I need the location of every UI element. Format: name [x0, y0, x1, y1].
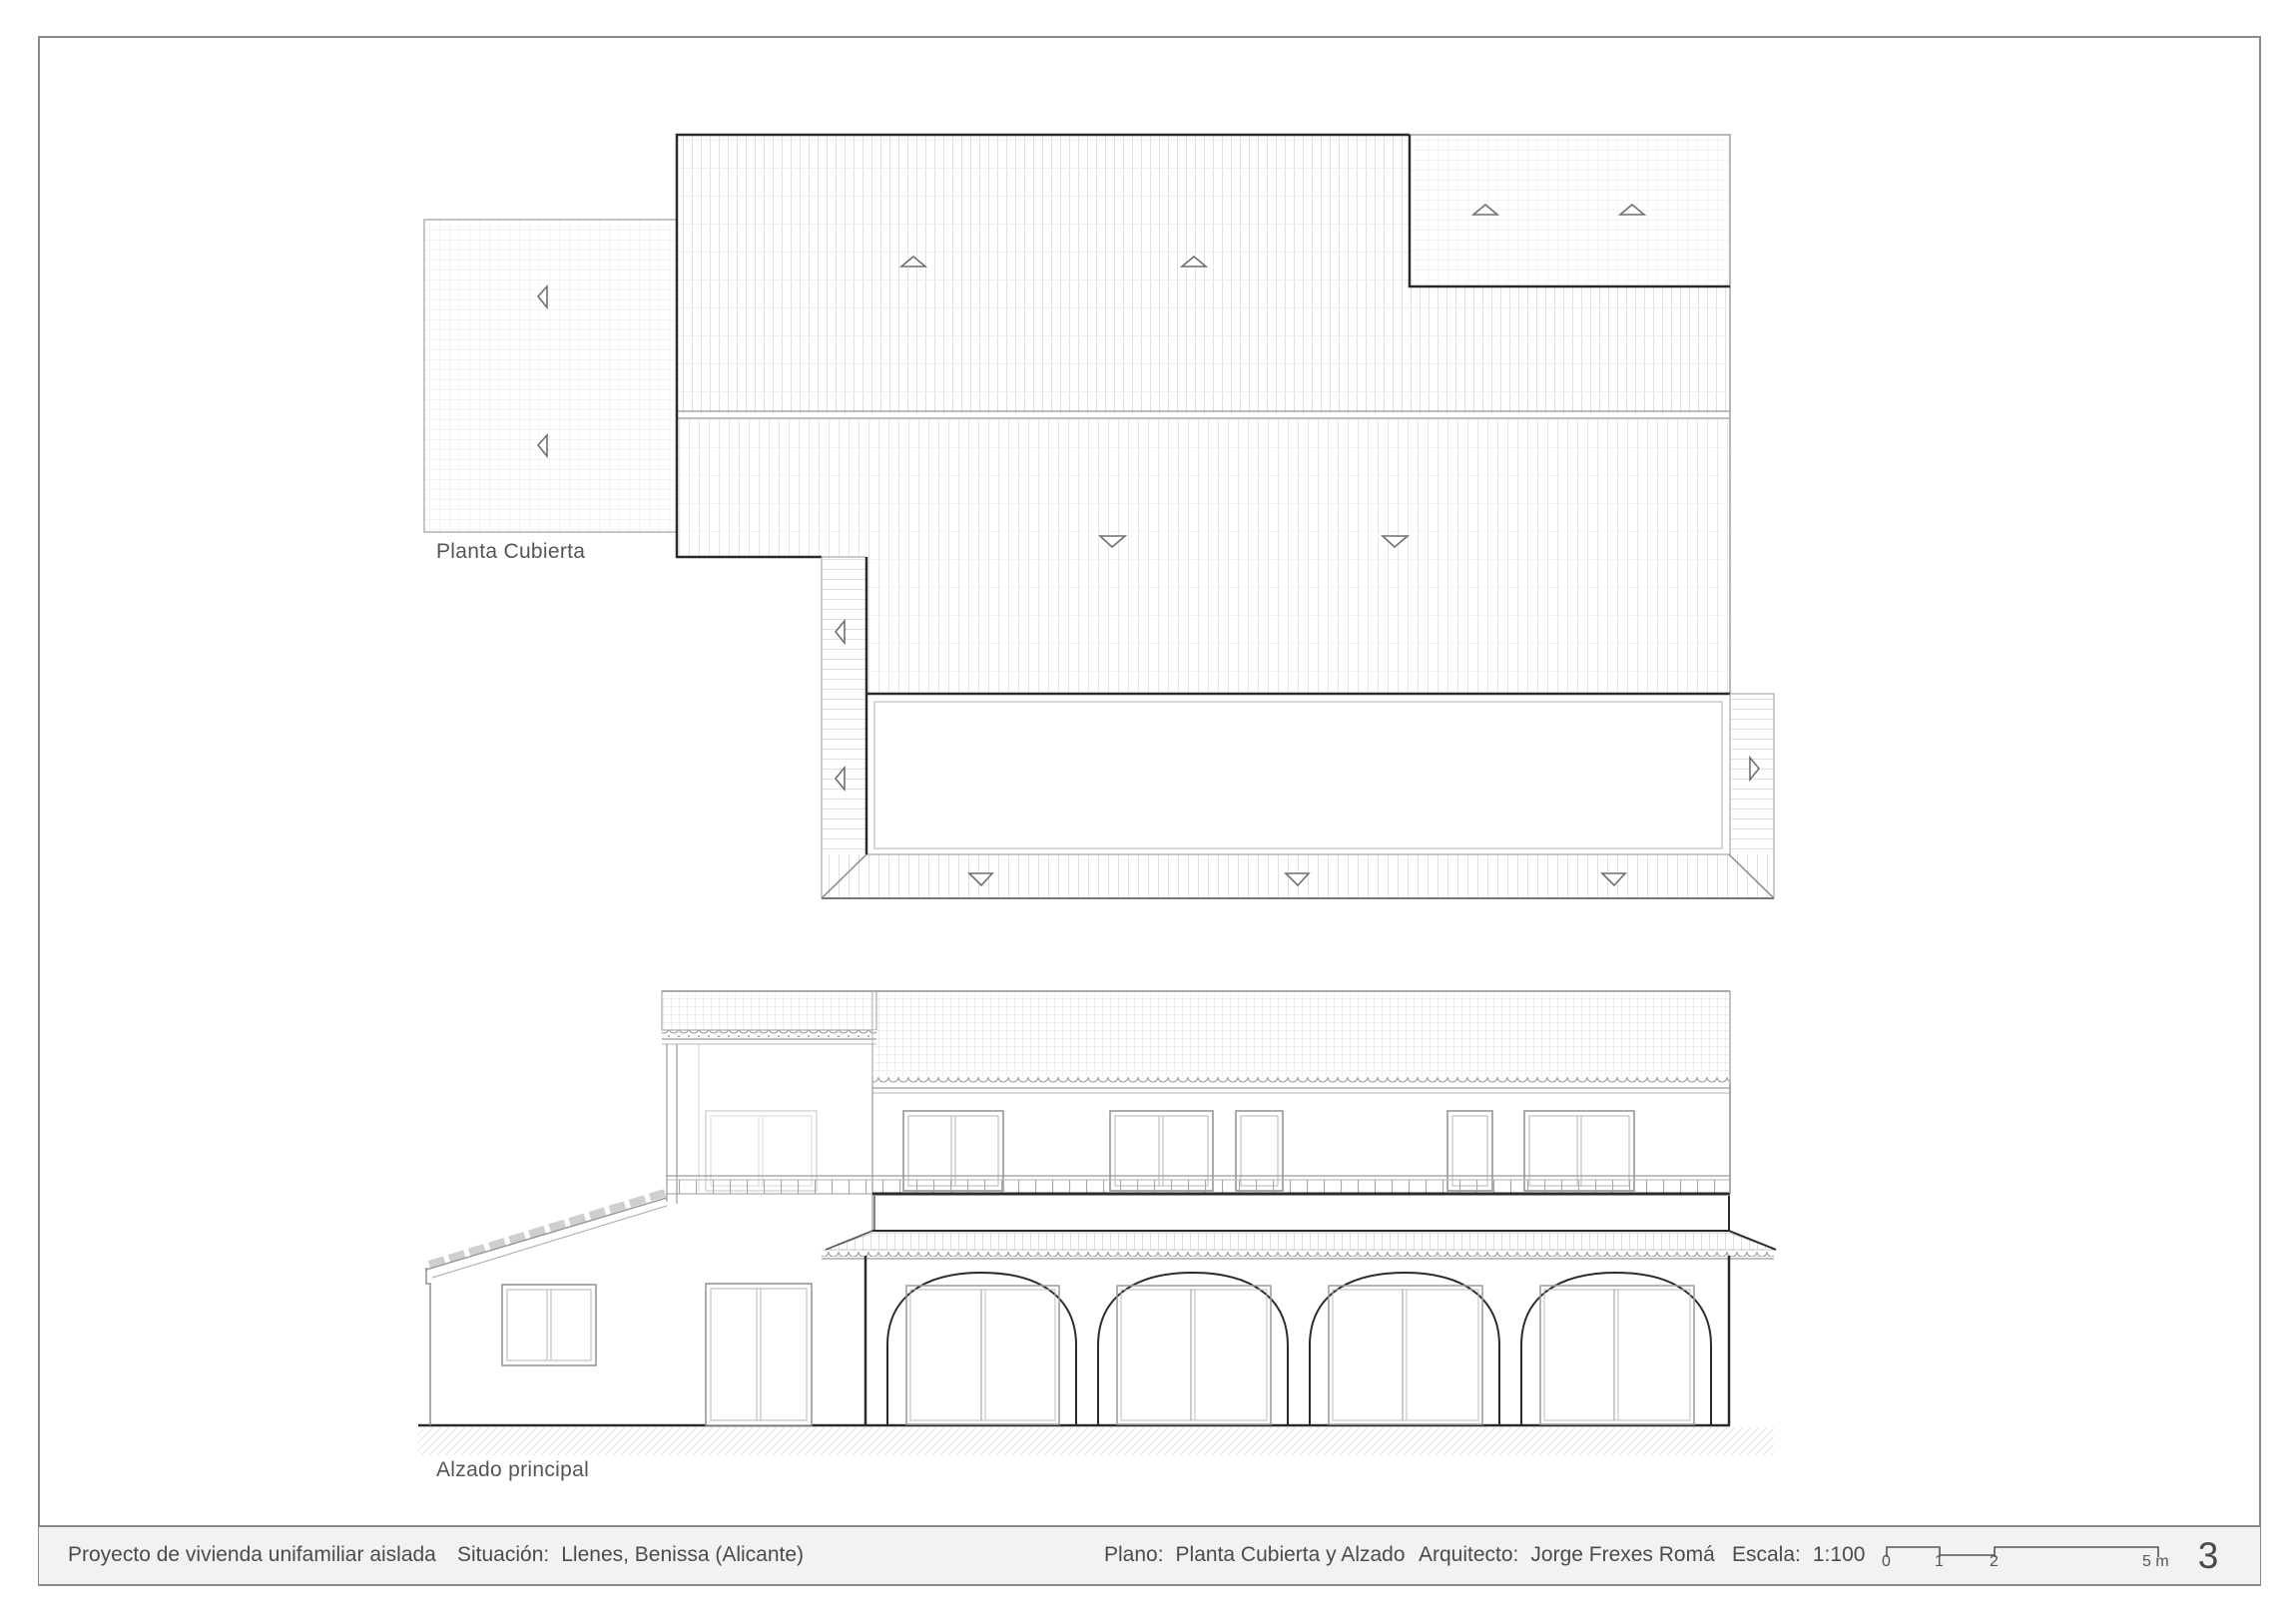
left-wing — [426, 1193, 812, 1425]
plan-label: Planta Cubierta — [436, 540, 585, 564]
wing-door-window — [706, 1284, 812, 1425]
window — [903, 1111, 1003, 1191]
arch-doors — [906, 1286, 1694, 1424]
scale-tick-2: 2 — [1990, 1553, 1999, 1571]
architect-field: Arquitecto:Jorge Frexes Romá — [1419, 1527, 1715, 1583]
scale-value: 1:100 — [1813, 1543, 1866, 1566]
scale-tick-1: 1 — [1935, 1553, 1944, 1571]
plan-field-value: Planta Cubierta y Alzado — [1176, 1543, 1406, 1566]
location-field: Situación:Llenes, Benissa (Alicante) — [457, 1527, 804, 1583]
tower-window-faint — [706, 1111, 817, 1191]
sheet-number: 3 — [2183, 1531, 2233, 1581]
scale-tick-0: 0 — [1882, 1553, 1891, 1571]
scale-tick-5m: 5 m — [2142, 1553, 2169, 1571]
elevation-label: Alzado principal — [436, 1458, 589, 1482]
location-value: Llenes, Benissa (Alicante) — [561, 1543, 804, 1566]
location-label: Situación: — [457, 1543, 549, 1566]
wing-window — [502, 1285, 596, 1365]
ground-texture — [418, 1427, 1774, 1455]
architect-label: Arquitecto: — [1419, 1543, 1518, 1566]
plan-field-label: Plano: — [1104, 1543, 1164, 1566]
glazed-door — [1540, 1286, 1694, 1424]
glazed-door — [1117, 1286, 1271, 1424]
graphic-scale-bar: 0 1 2 5 m — [1881, 1527, 2175, 1583]
window — [1447, 1111, 1492, 1191]
scale-bar-icon — [1881, 1541, 2175, 1563]
glazed-door — [906, 1286, 1059, 1424]
balustrade — [666, 1176, 1730, 1194]
drawing-sheet: Planta Cubierta Alzado principal Proyect… — [0, 0, 2296, 1623]
glazed-door — [1329, 1286, 1482, 1424]
elevation — [418, 991, 1776, 1455]
arches — [887, 1273, 1711, 1425]
architect-value: Jorge Frexes Romá — [1530, 1543, 1714, 1566]
tower-block — [662, 991, 876, 1231]
plan-field: Plano:Planta Cubierta y Alzado — [1104, 1527, 1406, 1583]
roof-plan — [424, 135, 1774, 898]
plan-annex-roof — [424, 220, 677, 532]
plan-secondary-roof — [1410, 135, 1730, 286]
upper-windows — [903, 1111, 1634, 1191]
drawing-canvas — [0, 0, 2296, 1623]
project-title: Proyecto de vivienda unifamiliar aislada — [68, 1527, 436, 1583]
scale-label: Escala: — [1732, 1543, 1801, 1566]
window — [1236, 1111, 1283, 1191]
porch-arcade — [865, 1256, 1729, 1425]
window — [1524, 1111, 1634, 1191]
title-block: Proyecto de vivienda unifamiliar aislada… — [39, 1525, 2260, 1584]
window — [1110, 1111, 1213, 1191]
scale-field: Escala:1:100 — [1732, 1527, 1865, 1583]
porch-roof — [822, 1196, 1776, 1259]
